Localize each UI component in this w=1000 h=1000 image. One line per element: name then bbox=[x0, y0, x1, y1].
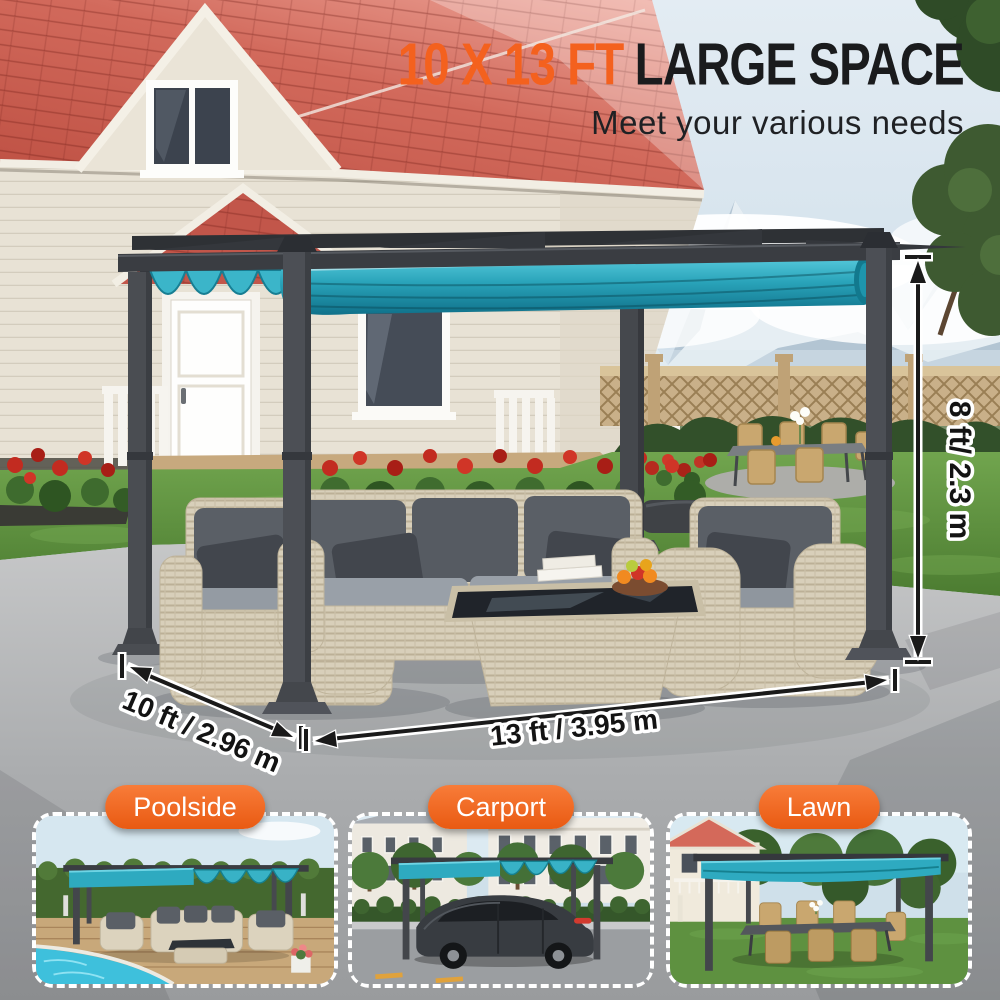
poolside-scene bbox=[36, 816, 334, 984]
door-handle bbox=[181, 388, 186, 404]
thumbnail-lawn-image bbox=[670, 816, 968, 984]
lawn-scene bbox=[670, 816, 968, 984]
headline-size: 10 X 13 FT bbox=[398, 31, 623, 97]
thumbnail-lawn: Lawn bbox=[666, 812, 972, 988]
front-door bbox=[162, 292, 260, 474]
thumbnail-label-carport: Carport bbox=[428, 785, 574, 829]
headline: 10 X 13 FTLARGE SPACE Meet your various … bbox=[368, 30, 964, 142]
headline-title: 10 X 13 FTLARGE SPACE bbox=[398, 30, 964, 98]
headline-claim: LARGE SPACE bbox=[635, 31, 964, 97]
headline-subtitle: Meet your various needs bbox=[368, 104, 964, 142]
thumbnail-carport-image bbox=[352, 816, 650, 984]
furniture-mini bbox=[94, 906, 293, 964]
thumbnail-label-poolside: Poolside bbox=[105, 785, 265, 829]
thumbnail-label-lawn: Lawn bbox=[759, 785, 880, 829]
product-image: 8 ft/ 2.3 m 10 ft / 2.96 m 13 ft / 3.95 … bbox=[0, 0, 1000, 1000]
thumbnail-carport: Carport bbox=[348, 812, 654, 988]
carport-scene bbox=[352, 816, 650, 984]
books bbox=[537, 555, 602, 581]
wall-window bbox=[352, 304, 456, 420]
dimension-height-label: 8 ft/ 2.3 m bbox=[943, 401, 976, 539]
thumbnail-poolside-image bbox=[36, 816, 334, 984]
dormer-window bbox=[140, 80, 244, 178]
thumbnail-poolside: Poolside bbox=[32, 812, 338, 988]
